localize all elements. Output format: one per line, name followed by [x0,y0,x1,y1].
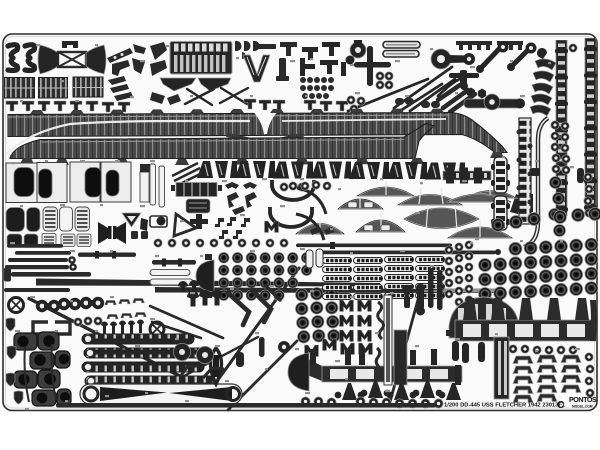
svg-text:1/200 DD-445 USS FLETCHER 194: 1/200 DD-445 USS FLETCHER 1942 23013F1 [444,403,566,409]
svg-text:MODEL.COM: MODEL.COM [572,405,593,409]
svg-text:PONTOS: PONTOS [569,395,597,404]
svg-text:C: C [557,400,564,411]
